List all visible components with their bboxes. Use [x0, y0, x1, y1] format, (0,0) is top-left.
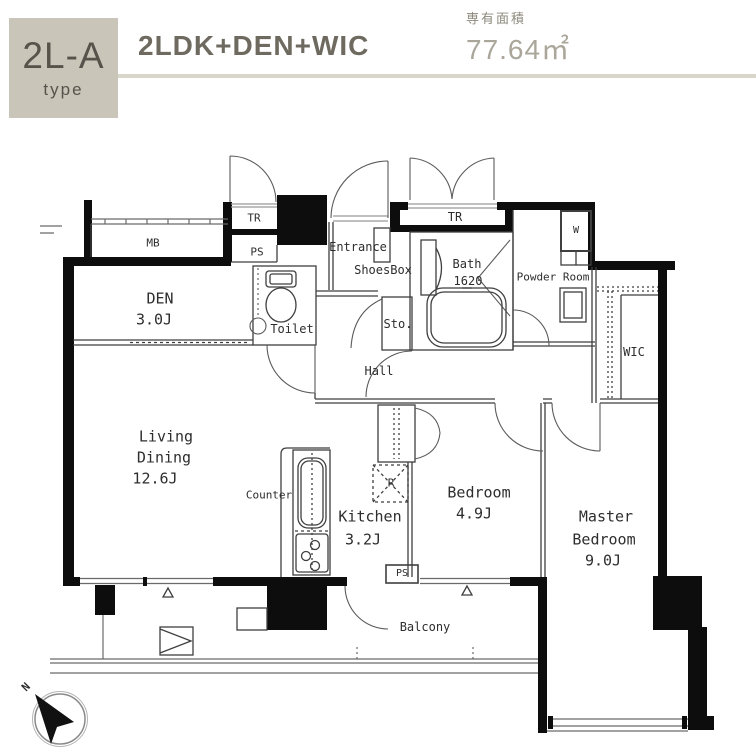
label-entrance: Entrance: [329, 241, 387, 253]
label-meter-box: MB: [146, 238, 159, 249]
compass: [33, 692, 88, 747]
label-bedroom-size: 4.9J: [456, 507, 492, 522]
label-trunk-room-right: TR: [448, 211, 462, 223]
label-pipe-space-left: PS: [250, 247, 263, 258]
label-powder-room: Powder Room: [517, 272, 590, 283]
label-storage: Sto.: [384, 318, 413, 330]
label-wic: WIC: [623, 346, 645, 358]
kitchen-unit: [293, 450, 330, 575]
floor-plan-drawing: [0, 0, 756, 756]
label-living-size: 12.6J: [132, 472, 177, 487]
label-den-size: 3.0J: [136, 313, 172, 328]
label-master-1: Master: [579, 510, 633, 525]
label-hall: Hall: [365, 365, 394, 377]
label-living: Living: [139, 430, 193, 445]
label-master-2: Bedroom: [572, 533, 635, 548]
toilet-fixture: [266, 271, 296, 322]
label-washer: W: [573, 226, 579, 236]
label-kitchen: Kitchen: [338, 510, 401, 525]
label-den: DEN: [146, 292, 173, 307]
label-bedroom: Bedroom: [447, 486, 510, 501]
floor-plan-page: 2L-A type 2LDK+DEN+WIC 専有面積 77.64㎡: [0, 0, 756, 756]
label-counter: Counter: [246, 490, 292, 501]
washing-machine: [561, 211, 591, 265]
label-kitchen-size: 3.2J: [345, 533, 381, 548]
vanity-sink: [560, 288, 586, 322]
windows-and-railing: [40, 204, 688, 731]
label-balcony: Balcony: [400, 621, 451, 633]
compass-needle: [35, 694, 74, 744]
label-master-size: 9.0J: [585, 554, 621, 569]
label-bath-size: 1620: [454, 275, 483, 287]
label-dining: Dining: [137, 451, 191, 466]
label-refrigerator: R: [388, 478, 395, 489]
label-shoesbox: ShoesBox: [354, 264, 412, 276]
label-pipe-space-bottom: PS: [396, 569, 408, 579]
label-toilet: Toilet: [270, 323, 313, 335]
label-trunk-room-left: TR: [247, 213, 260, 224]
label-bath: Bath: [453, 258, 482, 270]
